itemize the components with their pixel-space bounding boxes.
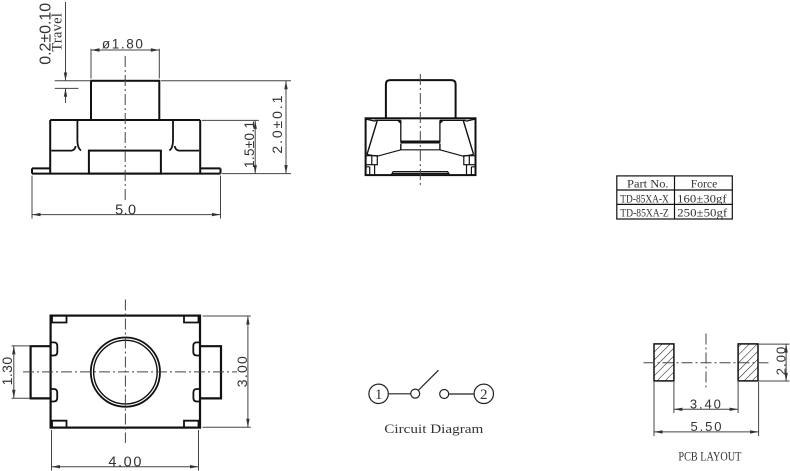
svg-text:3.40: 3.40 [690,396,721,411]
svg-text:1: 1 [375,387,383,403]
svg-text:TD-85XA-X: TD-85XA-X [620,193,669,205]
svg-text:Part No.: Part No. [627,177,669,191]
svg-text:160±30gf: 160±30gf [677,191,727,205]
svg-text:ø1.80: ø1.80 [102,36,143,51]
svg-text:2: 2 [480,387,488,403]
svg-text:TD-85XA-Z: TD-85XA-Z [620,208,669,220]
svg-text:4.00: 4.00 [108,454,141,470]
svg-text:250±50gf: 250±50gf [677,206,727,220]
svg-text:2.0±0.1: 2.0±0.1 [269,95,285,153]
svg-text:2.00: 2.00 [773,347,788,376]
svg-text:Force: Force [691,177,718,191]
svg-text:3.00: 3.00 [234,356,250,387]
svg-text:Travel: Travel [49,13,65,52]
svg-text:5.50: 5.50 [691,419,722,434]
svg-text:Circuit Diagram: Circuit Diagram [384,422,483,436]
svg-text:PCB LAYOUT: PCB LAYOUT [678,448,741,463]
svg-text:1.30: 1.30 [0,357,15,386]
svg-text:5.0: 5.0 [115,202,136,218]
svg-text:1.5±0.1: 1.5±0.1 [242,121,257,168]
